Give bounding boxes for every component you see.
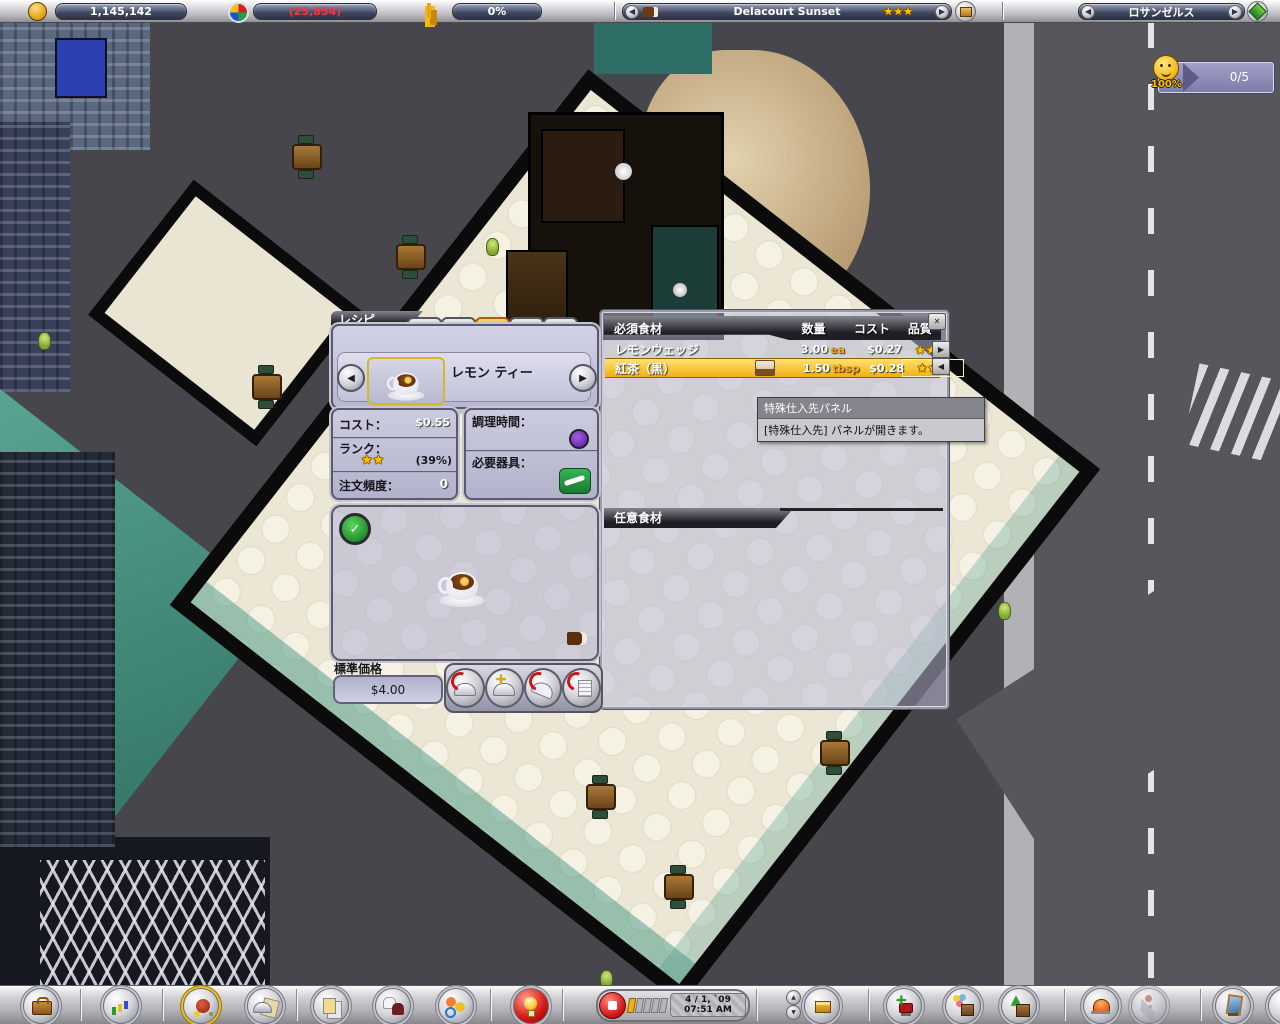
- bulb-base-icon: [528, 1010, 535, 1017]
- happiness-count: 0/5: [1230, 70, 1249, 84]
- expenses-display: (25,854): [253, 3, 377, 20]
- restaurant-name: Delacourt Sunset: [733, 5, 840, 18]
- city-map-button[interactable]: [1247, 1, 1268, 22]
- happiness-badge[interactable]: 100% 0/5: [1158, 62, 1274, 93]
- ingredient-qty: 1.50: [775, 362, 830, 375]
- decorations-button[interactable]: [945, 988, 981, 1024]
- finance-button[interactable]: [23, 988, 59, 1024]
- documents-icon: [323, 998, 336, 1014]
- ingredients-panel: 必須食材 数量 コスト 品質 ✕ レモンウェッジ 3.00 ea $0.27 ★…: [600, 310, 949, 709]
- divider: [1002, 2, 1003, 20]
- game-screen: 100% 0/5 レシピ ◀ ▶ レモン テ: [0, 0, 1280, 1024]
- table[interactable]: [396, 244, 426, 270]
- right-arrow-icon: ▶: [939, 8, 945, 16]
- lightbulb-icon: [524, 997, 537, 1010]
- price-field[interactable]: $4.00: [333, 675, 443, 704]
- recipe-actions: +: [444, 663, 603, 713]
- optional-header-line: [780, 508, 943, 511]
- alarm-base-icon: [1091, 1011, 1110, 1014]
- floor-up-button[interactable]: ▲: [786, 990, 801, 1005]
- recipe-name: レモン ティー: [451, 362, 533, 381]
- price-value: $4.00: [371, 683, 405, 697]
- happiness-percent: 100%: [1151, 79, 1182, 90]
- recipe-selector: ◀ ▶ レモン ティー: [331, 324, 599, 409]
- alarm-button[interactable]: [1083, 988, 1119, 1024]
- col-cost: コスト: [845, 320, 899, 337]
- statistics-button[interactable]: [103, 988, 139, 1024]
- down-arrow-icon: ▼: [791, 1009, 796, 1016]
- time-controls: 4 / 1, `09 07:51 AM: [596, 989, 750, 1022]
- menu-board-button[interactable]: [1215, 988, 1251, 1024]
- divider: [296, 989, 297, 1021]
- table[interactable]: [664, 874, 694, 900]
- close-button[interactable]: ✕: [928, 313, 946, 330]
- recipe-panel: レシピ ◀ ▶ レモン ティー: [331, 311, 599, 706]
- money-display: 1,145,142: [55, 3, 187, 20]
- customer[interactable]: [486, 238, 499, 256]
- advisor-button[interactable]: [513, 988, 549, 1024]
- prev-recipe-button[interactable]: ◀: [337, 364, 365, 392]
- occupancy-value: 0%: [488, 5, 507, 18]
- private-room: [88, 179, 363, 446]
- smiley-icon: [1153, 55, 1179, 81]
- right-arrow-icon: ▶: [938, 345, 944, 354]
- recipe-stats-box: コスト： $0.55 ランク： ★★ (39%) 注文頻度： 0: [331, 408, 458, 500]
- reports-button[interactable]: [313, 988, 349, 1024]
- marker-base-icon: [1140, 999, 1155, 1024]
- ingredient-unit: ea: [828, 343, 862, 356]
- next-restaurant-button[interactable]: ▶: [935, 5, 949, 19]
- divider: [1064, 989, 1065, 1021]
- date-value: 4 / 1, `09: [671, 995, 745, 1005]
- left-arrow-icon: ◀: [938, 362, 944, 371]
- pushpin-icon: [1145, 995, 1152, 1002]
- close-icon: ✕: [934, 317, 941, 326]
- basket-icon: [755, 360, 775, 376]
- divider: [490, 989, 491, 1021]
- rank-stars: ★★: [361, 453, 384, 468]
- required-ingredients-title: 必須食材: [604, 320, 782, 337]
- badge-notch: [1183, 63, 1199, 92]
- next-city-button[interactable]: ▶: [1228, 5, 1242, 19]
- optional-ingredients-title: 任意食材: [604, 508, 794, 528]
- money-icon: [28, 2, 47, 21]
- cooking-info-box: 調理時間： 必要器具：: [464, 408, 599, 500]
- tooltip-title: 特殊仕入先パネル: [758, 398, 984, 419]
- divider: [1200, 989, 1201, 1021]
- left-arrow-icon: ◀: [347, 373, 355, 384]
- cook-time-label: 調理時間：: [472, 413, 532, 430]
- clock-icon: [569, 429, 589, 449]
- board-stand-icon: [1228, 1013, 1238, 1016]
- ingredient-qty: 3.00: [773, 343, 828, 356]
- restroom-stall: [541, 129, 625, 223]
- briefcase-handle-icon: [37, 997, 49, 1004]
- ingredient-cost: $0.28: [864, 362, 904, 375]
- remove-dish-button[interactable]: [446, 668, 485, 708]
- ingredient-name: 紅茶（黒）: [605, 360, 755, 377]
- plus-icon: +: [495, 670, 508, 688]
- finance-pie-icon: [228, 2, 249, 23]
- customer[interactable]: [38, 332, 51, 350]
- food-ordering-button[interactable]: [183, 988, 219, 1024]
- recipe-report-button[interactable]: [562, 668, 601, 708]
- occupancy-display: 0%: [452, 3, 542, 20]
- table[interactable]: [292, 144, 322, 170]
- table[interactable]: [586, 784, 616, 810]
- equipment-icon[interactable]: [559, 468, 591, 494]
- expenses-value: (25,854): [289, 5, 342, 18]
- road-lane-line: [1148, 22, 1154, 985]
- cloche-icon: [253, 1002, 272, 1013]
- pause-button[interactable]: [599, 992, 626, 1019]
- right-arrow-icon: ▶: [1232, 8, 1238, 16]
- staff-button[interactable]: [375, 988, 411, 1024]
- supplier-prev-button[interactable]: ◀: [932, 358, 950, 375]
- place-marker-button[interactable]: [1131, 988, 1167, 1024]
- left-arrow-icon: ◀: [629, 8, 635, 16]
- bottom-toolbar: 4 / 1, `09 07:51 AM ▲ ▼ + ▲: [0, 985, 1280, 1024]
- upgrade-button[interactable]: ▲: [1001, 988, 1037, 1024]
- divider: [80, 989, 81, 1021]
- ingredient-quality-stars[interactable]: ★★★: [902, 343, 960, 357]
- cookbook-icon: [567, 632, 587, 645]
- building-left: [0, 122, 70, 392]
- ingredient-name: レモンウェッジ: [605, 341, 755, 358]
- up-arrow-icon: ▲: [791, 994, 796, 1001]
- floor-view-button[interactable]: [804, 988, 840, 1024]
- city-name: ロサンゼルス: [1129, 4, 1195, 20]
- tooltip-body: [特殊仕入先] パネルが開きます。: [758, 419, 984, 441]
- lemon-tea-image: [388, 365, 425, 400]
- gift-box-icon: [961, 1004, 974, 1016]
- right-arrow-icon: ▶: [579, 373, 587, 384]
- menu-book-icon: [643, 7, 658, 17]
- chair-icon: [427, 3, 431, 18]
- order-frequency-value: 0: [440, 477, 448, 491]
- pan-glyph: [564, 475, 586, 486]
- building-bottom-left: [0, 452, 115, 847]
- prev-city-button[interactable]: ◀: [1081, 5, 1095, 19]
- scaffold: [40, 860, 265, 985]
- recipe-thumbnail[interactable]: [367, 357, 445, 405]
- col-quantity: 数量: [782, 320, 845, 337]
- floor-down-button[interactable]: ▼: [786, 1005, 801, 1020]
- divider: [614, 2, 615, 20]
- required-ingredients-header: 必須食材 数量 コスト 品質: [604, 316, 941, 340]
- customer[interactable]: [600, 970, 613, 985]
- approved-check-icon[interactable]: ✓: [339, 513, 371, 545]
- green-plus-icon: +: [895, 991, 908, 1009]
- customer[interactable]: [998, 602, 1011, 620]
- restaurant-stars: ★★★: [883, 5, 913, 18]
- divider: [562, 989, 563, 1021]
- divider: [162, 989, 163, 1021]
- cost-value: $0.55: [415, 416, 450, 429]
- cost-label: コスト：: [339, 416, 387, 433]
- edge-button-partial[interactable]: [1268, 988, 1280, 1024]
- supplier-next-button[interactable]: ▶: [932, 341, 950, 358]
- prev-restaurant-button[interactable]: ◀: [625, 5, 639, 19]
- bar-chart-icon: [112, 1007, 116, 1015]
- restaurant-selector: ◀ Delacourt Sunset ★★★ ▶: [622, 3, 952, 20]
- customer-opinions-button[interactable]: [438, 988, 474, 1024]
- toilet: [673, 283, 687, 297]
- ingredient-row[interactable]: レモンウェッジ 3.00 ea $0.27 ★★★: [605, 341, 940, 358]
- magnifier-icon: [445, 1007, 456, 1018]
- navigate-diamond-icon: [1248, 2, 1266, 20]
- time-value: 07:51 AM: [671, 1005, 745, 1015]
- money-value: 1,145,142: [90, 5, 152, 18]
- food-icon: [196, 999, 210, 1013]
- order-frequency-label: 注文頻度：: [339, 477, 399, 494]
- teal-wall-top: [594, 22, 712, 74]
- divider: [756, 989, 757, 1021]
- rank-percent: (39%): [416, 454, 452, 467]
- recipes-button[interactable]: [247, 988, 283, 1024]
- supply-box-icon: [960, 7, 972, 17]
- table[interactable]: [820, 740, 850, 766]
- left-arrow-icon: ◀: [1085, 8, 1091, 16]
- ingredient-icon-slot: [755, 343, 773, 357]
- staff-figure-icon: [392, 1003, 404, 1015]
- ingredient-cost: $0.27: [862, 343, 902, 356]
- lemon-tea-preview-image: [439, 563, 485, 607]
- date-time-display: 4 / 1, `09 07:51 AM: [670, 993, 746, 1017]
- top-status-bar: 1,145,142 (25,854) 0% ◀ Delacourt Sunset…: [0, 0, 1280, 23]
- city-selector: ◀ ロサンゼルス ▶: [1078, 3, 1245, 20]
- tooltip: 特殊仕入先パネル [特殊仕入先] パネルが開きます。: [757, 397, 985, 442]
- go-to-restaurant-button[interactable]: [955, 1, 976, 22]
- send-dish-button[interactable]: [524, 668, 563, 708]
- balloons-icon: [953, 995, 960, 1002]
- billboard-blue: [55, 38, 107, 98]
- ingredient-unit: tbsp: [830, 362, 864, 375]
- check-glyph: ✓: [350, 522, 361, 537]
- floor-box-icon: [815, 1001, 831, 1013]
- next-recipe-button[interactable]: ▶: [569, 364, 597, 392]
- crate-icon: [1016, 1004, 1030, 1017]
- faces-icon: [446, 997, 456, 1007]
- add-dish-button[interactable]: +: [485, 668, 524, 708]
- ingredient-row-selected[interactable]: 紅茶（黒） 1.50 tbsp $0.28 ★★★: [605, 358, 940, 378]
- add-furniture-button[interactable]: +: [886, 988, 922, 1024]
- table[interactable]: [252, 374, 282, 400]
- speed-bar-5[interactable]: [659, 998, 669, 1013]
- equipment-label: 必要器具：: [472, 454, 532, 471]
- sink: [615, 163, 632, 180]
- recipe-preview: ✓: [331, 505, 599, 661]
- divider: [868, 989, 869, 1021]
